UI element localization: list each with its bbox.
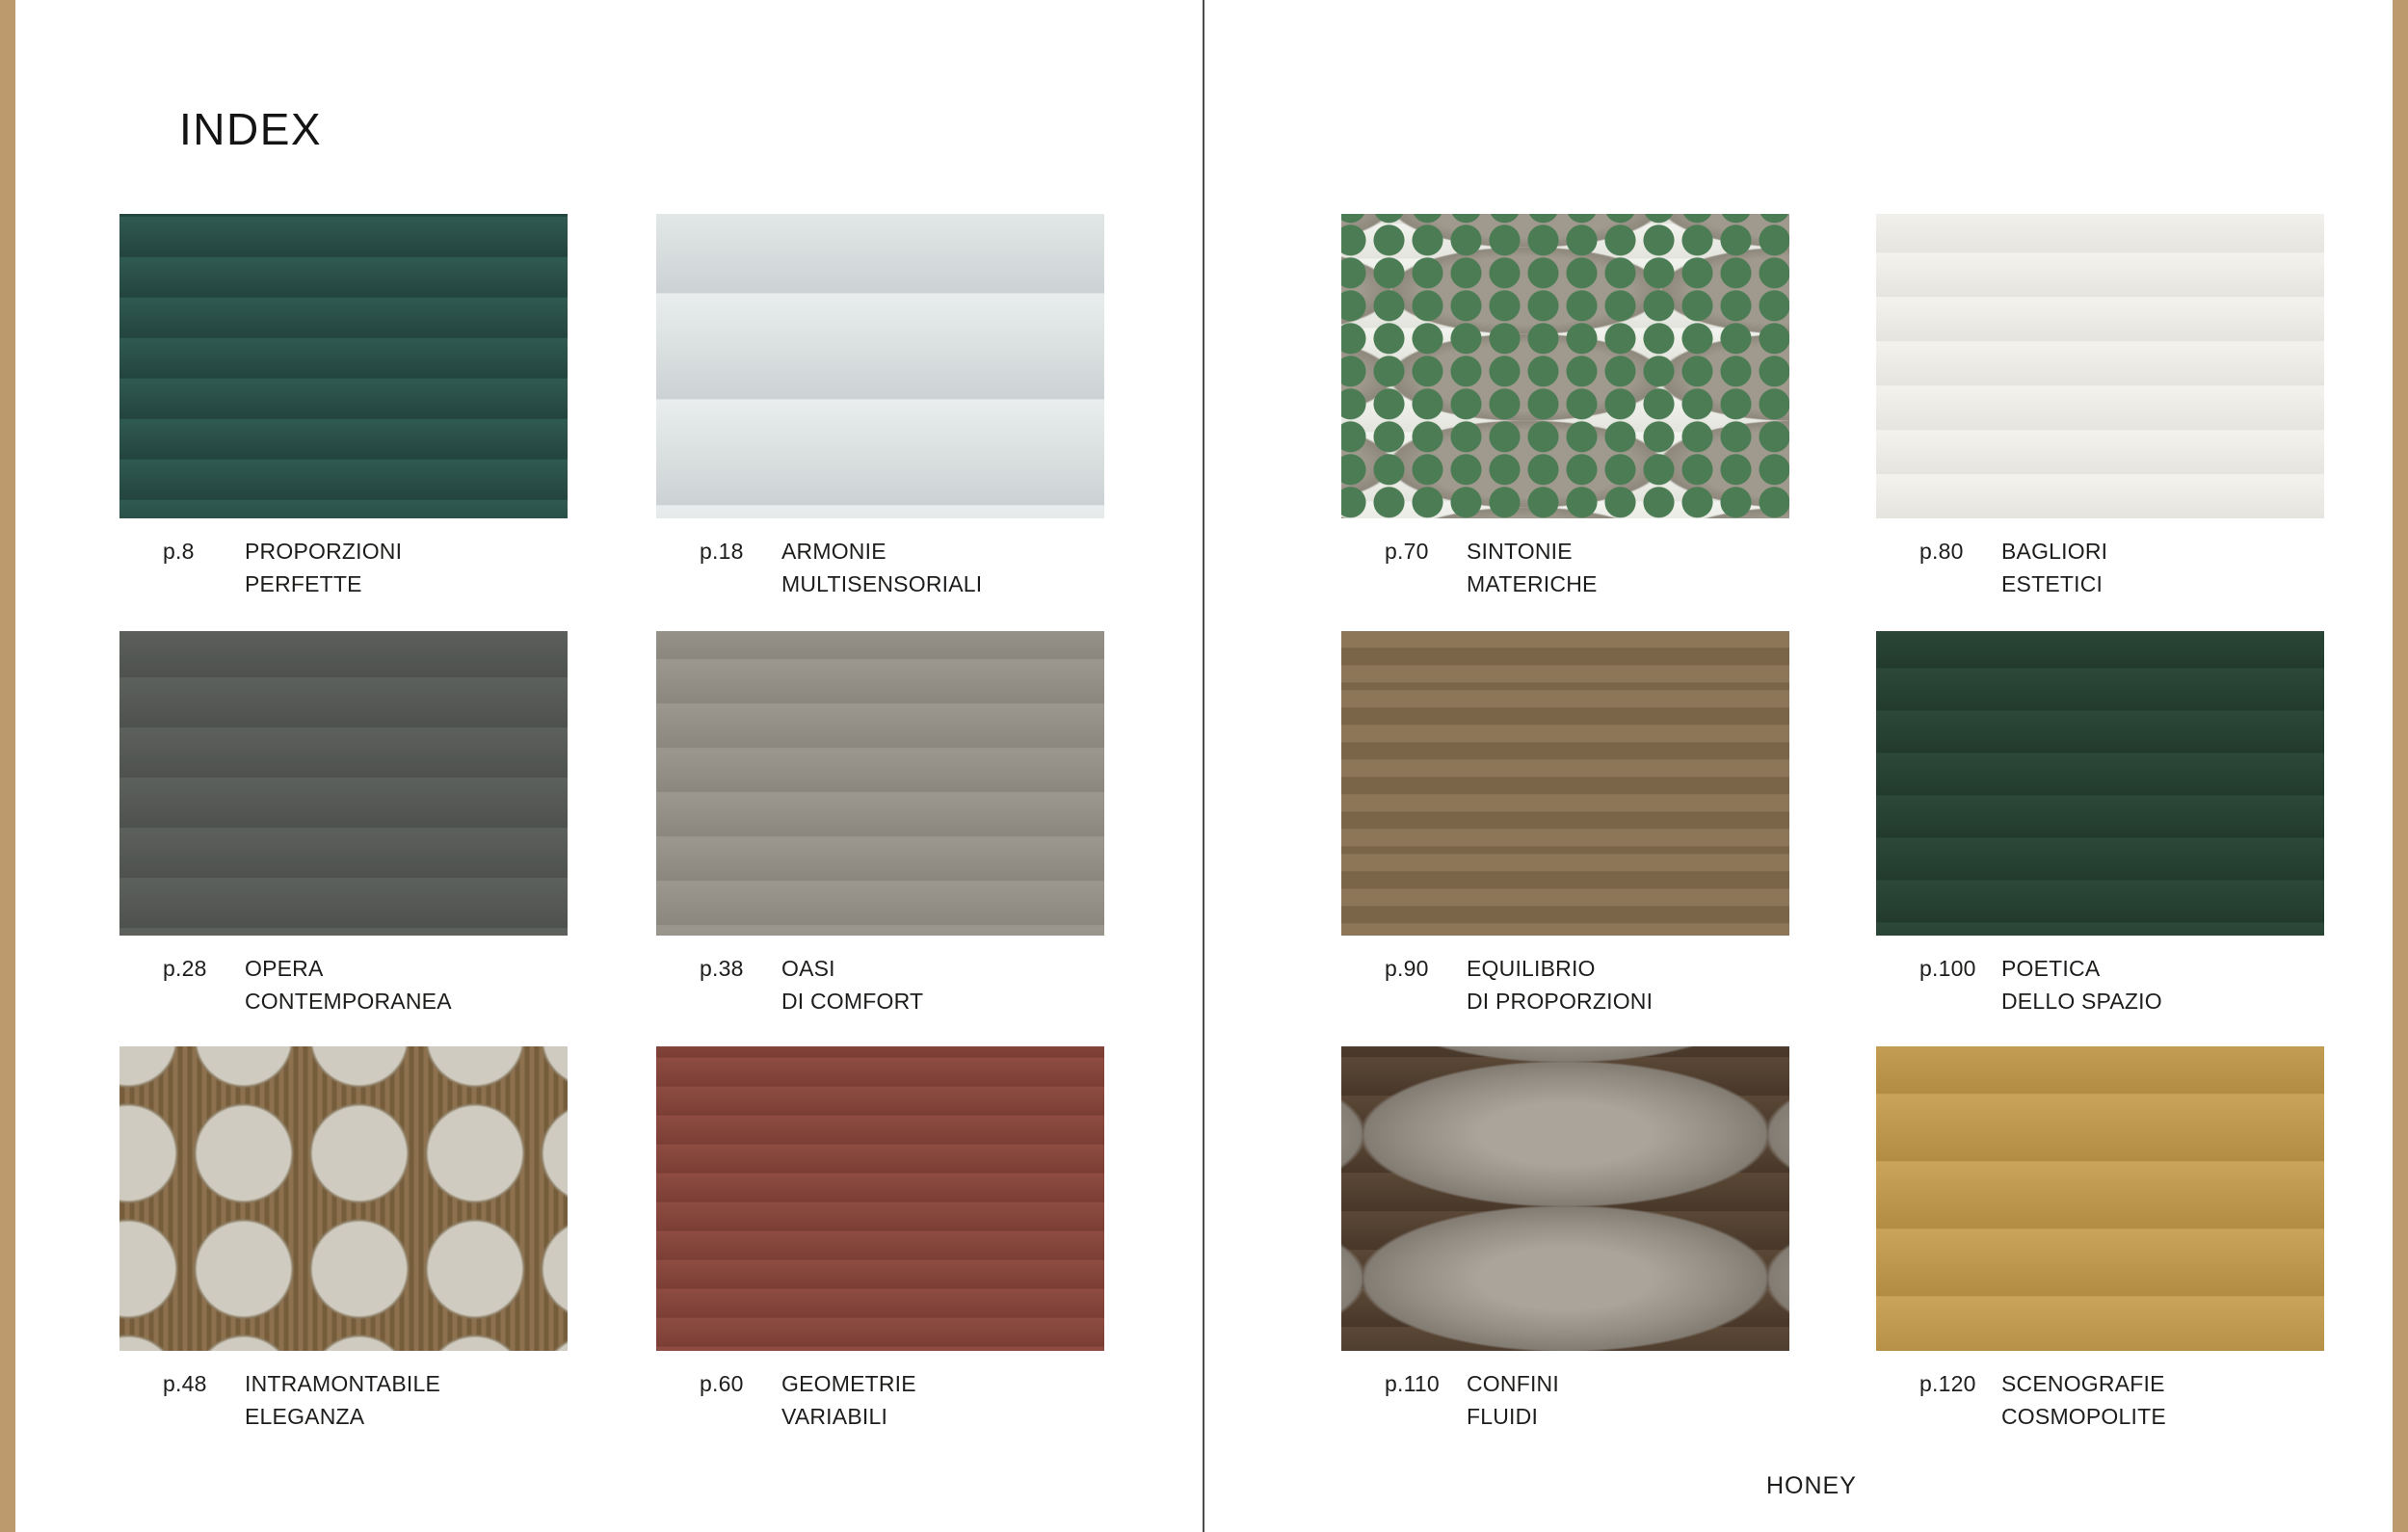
- index-caption: p.60 GEOMETRIE VARIABILI: [656, 1367, 1104, 1433]
- index-entry-p38[interactable]: p.38 OASI DI COMFORT: [656, 631, 1104, 1017]
- page-number[interactable]: p.48: [163, 1367, 245, 1400]
- page-number[interactable]: p.90: [1385, 952, 1467, 985]
- index-caption: p.100 POETICA DELLO SPAZIO: [1876, 952, 2324, 1017]
- index-caption: p.70 SINTONIE MATERICHE: [1341, 535, 1789, 600]
- index-entry-p8[interactable]: p.8 PROPORZIONI PERFETTE: [119, 214, 568, 600]
- thumbnail-p8[interactable]: [119, 214, 568, 518]
- index-entry-p18[interactable]: p.18 ARMONIE MULTISENSORIALI: [656, 214, 1104, 600]
- index-entry-p28[interactable]: p.28 OPERA CONTEMPORANEA: [119, 631, 568, 1017]
- chapter-title[interactable]: BAGLIORI ESTETICI: [2001, 535, 2107, 600]
- index-caption: p.48 INTRAMONTABILE ELEGANZA: [119, 1367, 568, 1433]
- thumbnail-p48[interactable]: [119, 1046, 568, 1351]
- thumbnail-p100[interactable]: [1876, 631, 2324, 936]
- thumbnail-p120[interactable]: [1876, 1046, 2324, 1351]
- page-number[interactable]: p.120: [1919, 1367, 2001, 1400]
- chapter-title[interactable]: PROPORZIONI PERFETTE: [245, 535, 402, 600]
- chapter-title[interactable]: OASI DI COMFORT: [781, 952, 923, 1017]
- page-number[interactable]: p.80: [1919, 535, 2001, 568]
- chapter-title[interactable]: SCENOGRAFIE COSMOPOLITE: [2001, 1367, 2166, 1433]
- chapter-title[interactable]: ARMONIE MULTISENSORIALI: [781, 535, 982, 600]
- thumbnail-p28[interactable]: [119, 631, 568, 936]
- index-caption: p.18 ARMONIE MULTISENSORIALI: [656, 535, 1104, 600]
- index-caption: p.80 BAGLIORI ESTETICI: [1876, 535, 2324, 600]
- index-caption: p.110 CONFINI FLUIDI: [1341, 1367, 1789, 1433]
- thumbnail-p70[interactable]: [1341, 214, 1789, 518]
- thumbnail-p80[interactable]: [1876, 214, 2324, 518]
- thumbnail-p38[interactable]: [656, 631, 1104, 936]
- index-entry-p70[interactable]: p.70 SINTONIE MATERICHE: [1341, 214, 1789, 600]
- index-entry-p110[interactable]: p.110 CONFINI FLUIDI: [1341, 1046, 1789, 1433]
- brand-name: HONEY: [1766, 1472, 1857, 1500]
- right-accent-stripe: [2393, 0, 2408, 1532]
- page-number[interactable]: p.60: [700, 1367, 781, 1400]
- page-number[interactable]: p.100: [1919, 952, 2001, 985]
- chapter-title[interactable]: EQUILIBRIO DI PROPORZIONI: [1467, 952, 1653, 1017]
- index-entry-p60[interactable]: p.60 GEOMETRIE VARIABILI: [656, 1046, 1104, 1433]
- chapter-title[interactable]: OPERA CONTEMPORANEA: [245, 952, 452, 1017]
- chapter-title[interactable]: SINTONIE MATERICHE: [1467, 535, 1598, 600]
- index-entry-p48[interactable]: p.48 INTRAMONTABILE ELEGANZA: [119, 1046, 568, 1433]
- left-accent-stripe: [0, 0, 15, 1532]
- page-title: INDEX: [179, 103, 322, 155]
- index-entry-p80[interactable]: p.80 BAGLIORI ESTETICI: [1876, 214, 2324, 600]
- page-gutter-divider: [1203, 0, 1204, 1532]
- thumbnail-p110[interactable]: [1341, 1046, 1789, 1351]
- thumbnail-p60[interactable]: [656, 1046, 1104, 1351]
- index-entry-p120[interactable]: p.120 SCENOGRAFIE COSMOPOLITE: [1876, 1046, 2324, 1433]
- chapter-title[interactable]: CONFINI FLUIDI: [1467, 1367, 1559, 1433]
- page-number[interactable]: p.110: [1385, 1367, 1467, 1400]
- chapter-title[interactable]: INTRAMONTABILE ELEGANZA: [245, 1367, 440, 1433]
- chapter-title[interactable]: POETICA DELLO SPAZIO: [2001, 952, 2162, 1017]
- index-caption: p.38 OASI DI COMFORT: [656, 952, 1104, 1017]
- index-caption: p.8 PROPORZIONI PERFETTE: [119, 535, 568, 600]
- index-caption: p.120 SCENOGRAFIE COSMOPOLITE: [1876, 1367, 2324, 1433]
- page-number[interactable]: p.70: [1385, 535, 1467, 568]
- index-entry-p100[interactable]: p.100 POETICA DELLO SPAZIO: [1876, 631, 2324, 1017]
- page-number[interactable]: p.28: [163, 952, 245, 985]
- page-number[interactable]: p.18: [700, 535, 781, 568]
- chapter-title[interactable]: GEOMETRIE VARIABILI: [781, 1367, 916, 1433]
- index-entry-p90[interactable]: p.90 EQUILIBRIO DI PROPORZIONI: [1341, 631, 1789, 1017]
- thumbnail-p18[interactable]: [656, 214, 1104, 518]
- page-number[interactable]: p.8: [163, 535, 245, 568]
- thumbnail-p90[interactable]: [1341, 631, 1789, 936]
- index-caption: p.90 EQUILIBRIO DI PROPORZIONI: [1341, 952, 1789, 1017]
- index-caption: p.28 OPERA CONTEMPORANEA: [119, 952, 568, 1017]
- page-number[interactable]: p.38: [700, 952, 781, 985]
